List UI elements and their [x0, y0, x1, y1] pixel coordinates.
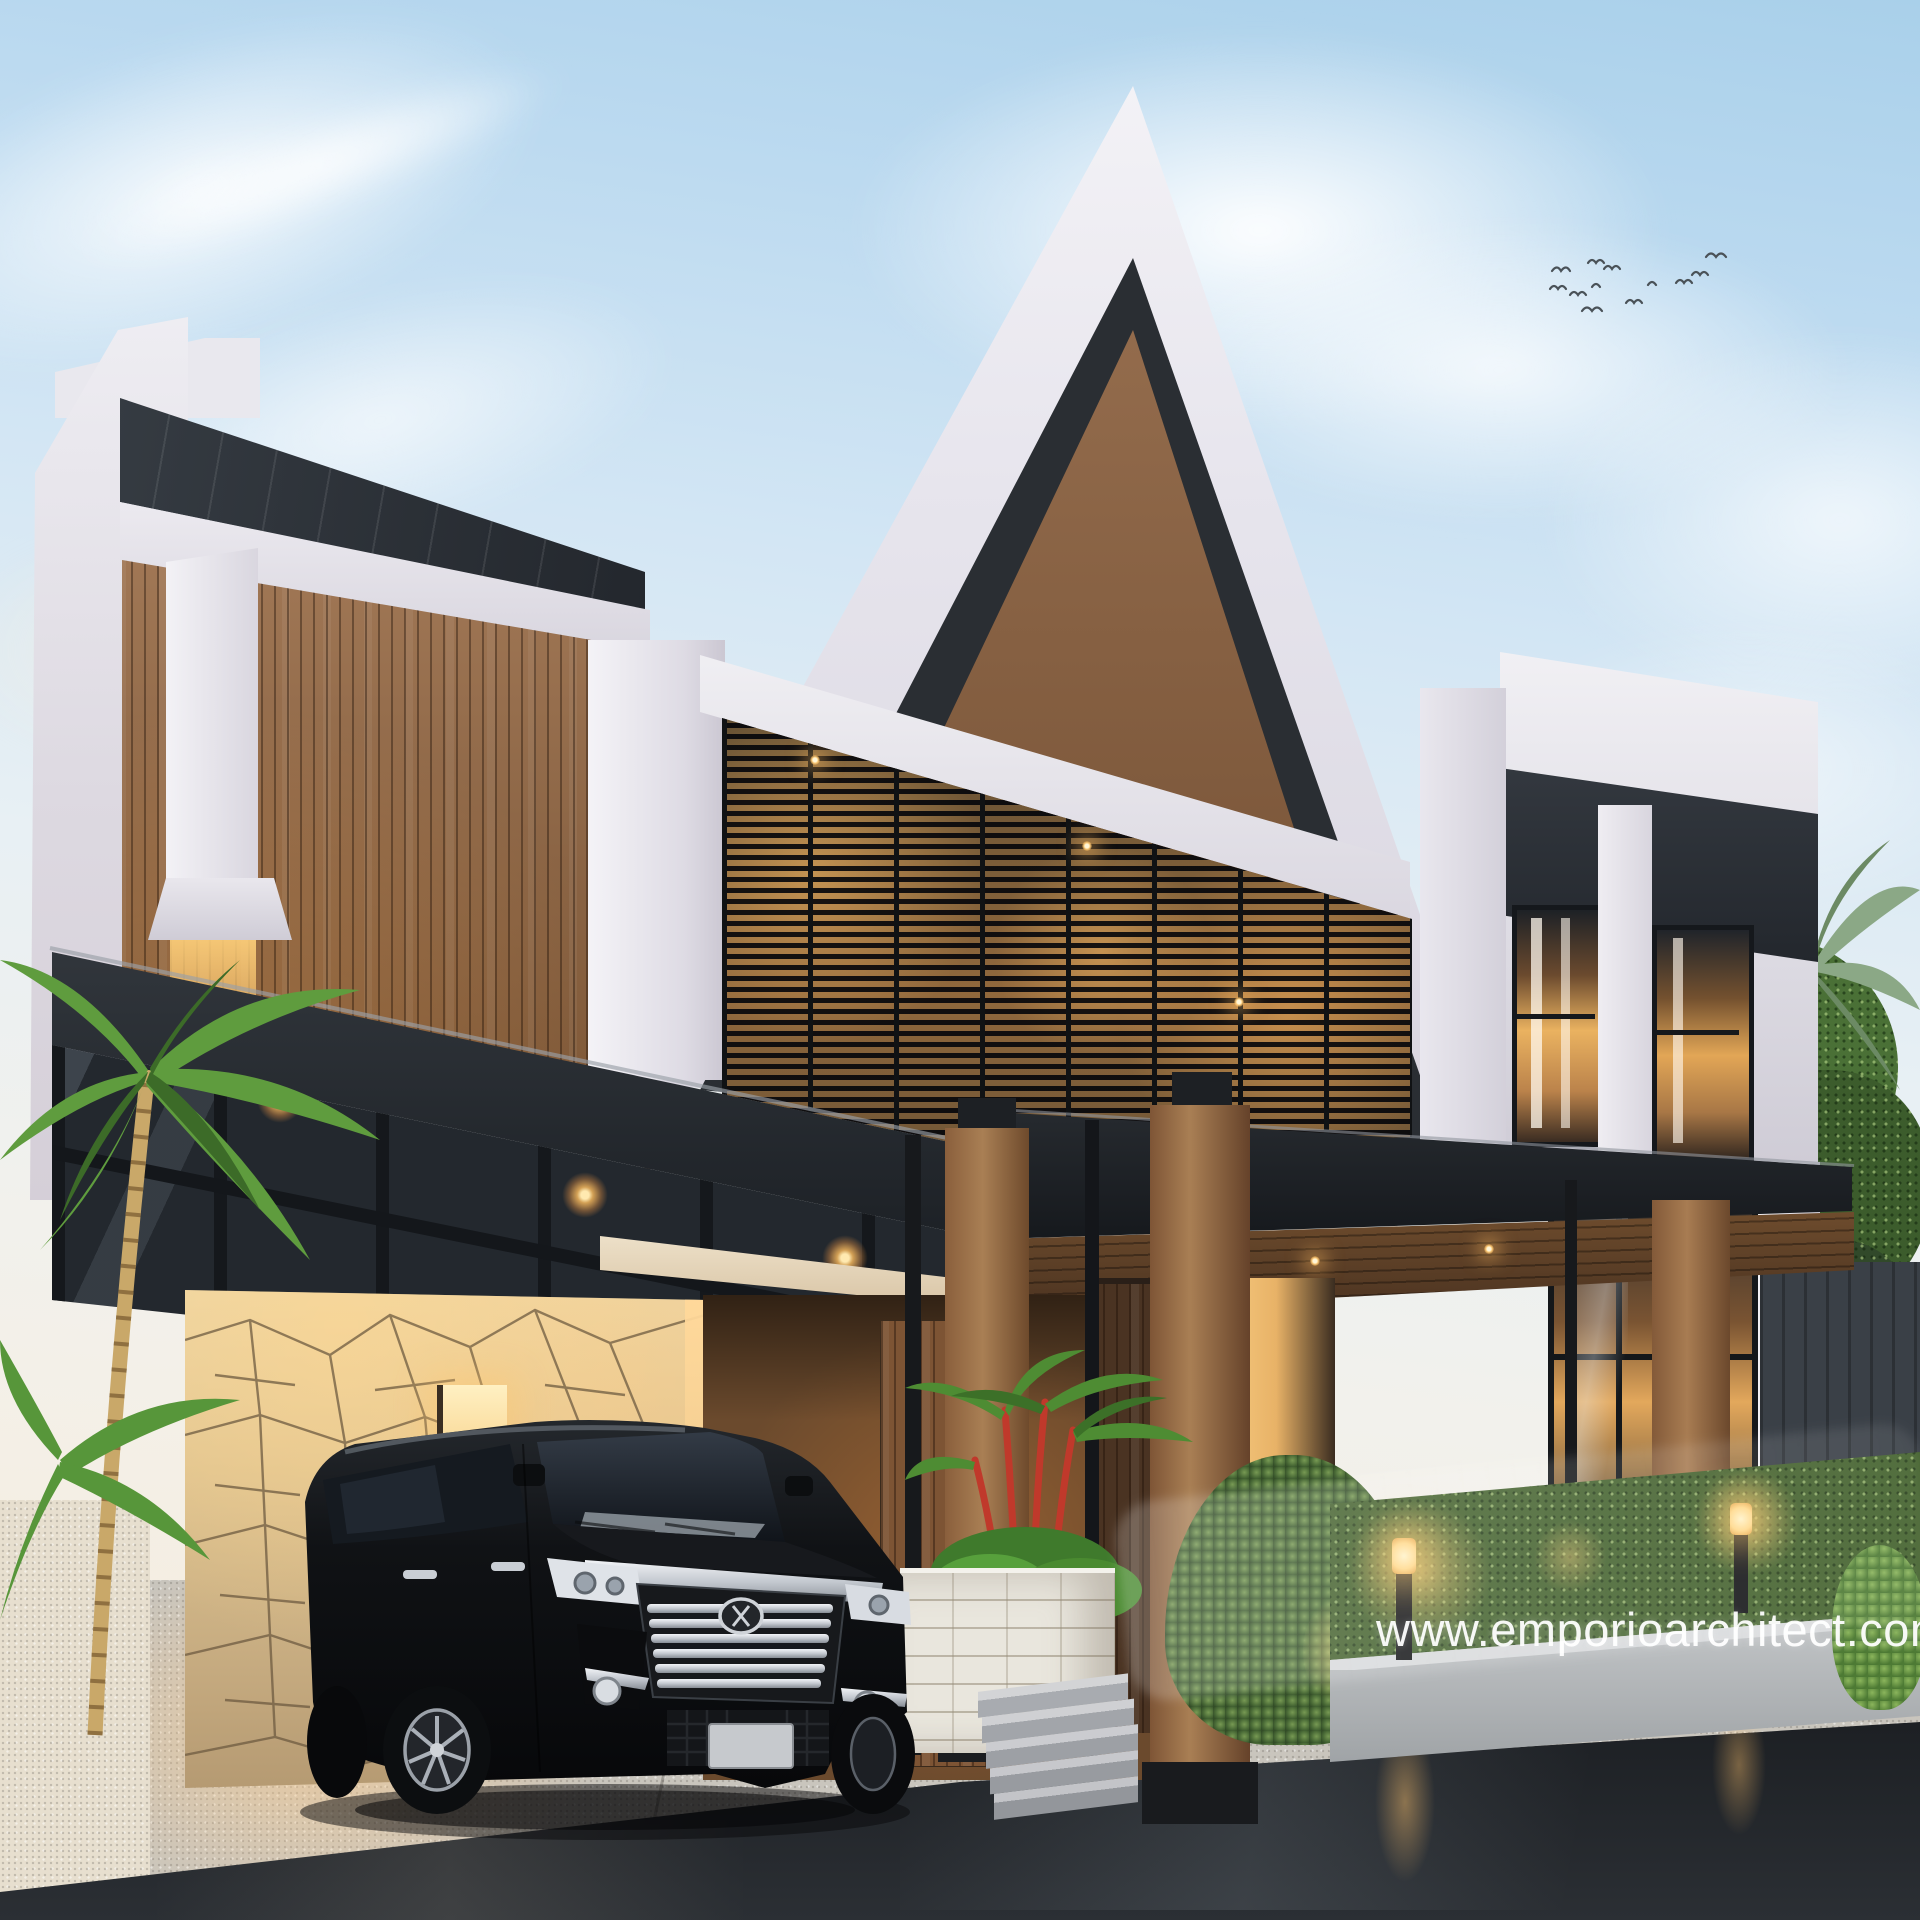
white-mullion-column	[1598, 805, 1652, 1160]
palm-tree-left	[0, 920, 480, 1920]
upper-window	[1652, 925, 1754, 1163]
window-mullion	[1517, 1014, 1595, 1019]
birds-flock	[1530, 245, 1750, 340]
soffit-downlight	[1484, 1244, 1494, 1254]
facade-light	[1082, 841, 1092, 851]
curtain	[1531, 918, 1542, 1128]
canopy-downlight	[562, 1172, 608, 1218]
curtain	[1673, 938, 1683, 1143]
upper-window	[1512, 905, 1610, 1147]
facade-light	[1234, 997, 1244, 1007]
watermark: www.emporioarchitect.com	[1376, 1602, 1920, 1657]
white-pilaster	[166, 548, 258, 883]
facade-light	[810, 755, 820, 765]
gable-right-column	[1420, 688, 1506, 1165]
curtain	[1561, 918, 1570, 1128]
entrance-steps	[978, 1672, 1138, 1827]
window-mullion	[1657, 1030, 1739, 1035]
render-canvas: www.emporioarchitect.com	[0, 0, 1920, 1920]
pillar-base	[1142, 1762, 1258, 1824]
soffit-downlight	[1310, 1256, 1320, 1266]
